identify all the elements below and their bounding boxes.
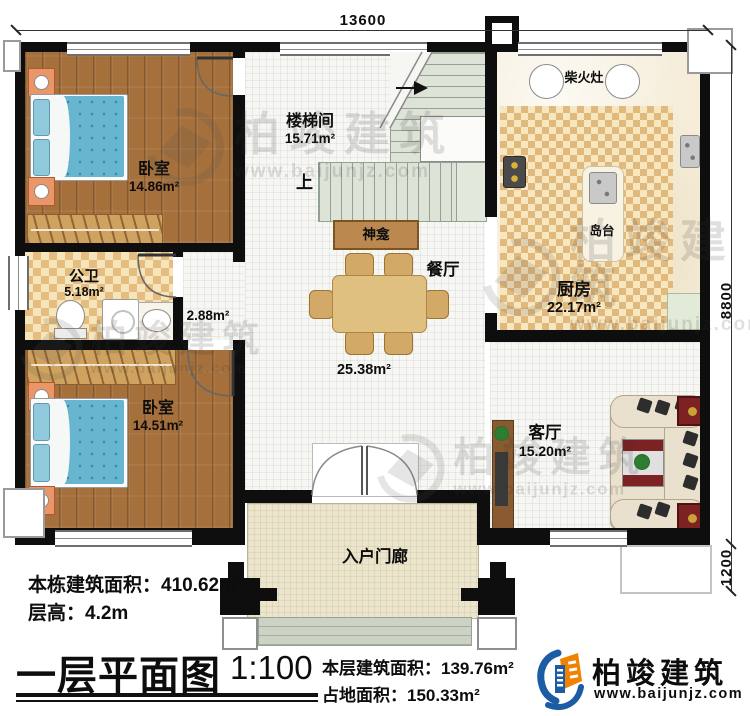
room-area: 14.51m² (112, 418, 204, 434)
exterior-box (3, 488, 45, 538)
room-label-stairwell: 楼梯间 15.71m² (262, 113, 358, 147)
plant-icon (634, 454, 650, 470)
toilet-tank (54, 328, 87, 339)
wardrobe (27, 214, 163, 246)
stair-up-label: 上 (296, 173, 313, 193)
room-name: 卧室 (112, 400, 204, 418)
dimension-right-height: 8800 (718, 282, 735, 319)
window (518, 42, 662, 56)
wood-stove-label: 柴火灶 (556, 71, 612, 86)
wall (233, 95, 245, 262)
fridge-icon (667, 293, 702, 330)
washing-machine-icon (102, 299, 139, 340)
exterior-box (687, 28, 733, 74)
window (55, 530, 192, 547)
pillow (33, 139, 50, 176)
window (8, 256, 29, 310)
dimension-porch-depth: 1200 (718, 549, 735, 586)
room-label-bedroom-top: 卧室 14.86m² (108, 161, 200, 195)
dining-area-label: 25.38m² (326, 362, 402, 379)
wall (477, 490, 490, 545)
wall (233, 340, 245, 350)
dining-chair (309, 290, 334, 319)
wardrobe (27, 346, 176, 385)
room-name: 卧室 (108, 161, 200, 179)
stair-void (420, 116, 486, 162)
footprint-area: 占地面积：150.33m² (322, 681, 480, 706)
hallway-area-label: 2.88m² (176, 308, 240, 324)
room-area: 5.18m² (52, 285, 116, 299)
stair-landing (455, 162, 487, 222)
dining-chair (384, 330, 413, 355)
room-area: 14.86m² (108, 179, 200, 195)
dimension-line-top (16, 30, 708, 31)
total-building-area: 本栋建筑面积：410.62m² (28, 570, 242, 597)
floor-area: 本层建筑面积：139.76m² (322, 654, 514, 679)
column-symbol (478, 578, 515, 615)
exterior-box (3, 40, 21, 72)
wall (233, 52, 245, 58)
room-area: 15.20m² (498, 443, 592, 459)
room-name: 客厅 (498, 424, 592, 443)
window (550, 530, 627, 547)
shrine-cabinet: 神龛 (333, 220, 419, 250)
room-name: 公卫 (52, 268, 116, 285)
pillow (33, 444, 50, 482)
room-area: 15.71m² (262, 131, 358, 147)
entry-steps (258, 617, 472, 646)
nightstand (28, 177, 55, 206)
pillow (33, 99, 50, 136)
plan-scale: 1:100 (230, 649, 313, 687)
room-label-bedroom-bottom: 卧室 14.51m² (112, 400, 204, 434)
floor-height: 层高：4.2m (28, 598, 128, 625)
kitchen-sink-icon (680, 135, 700, 168)
room-label-living: 客厅 15.20m² (498, 424, 592, 459)
wall (417, 490, 479, 503)
pillow (33, 403, 50, 441)
room-name: 厨房 (528, 280, 620, 300)
room-label-dining: 餐厅 (410, 261, 476, 280)
column-symbol (490, 562, 506, 578)
tv-icon (495, 452, 508, 506)
wall (485, 330, 710, 342)
wall (700, 42, 710, 545)
stair-flight-lower (318, 162, 457, 222)
column-symbol (260, 588, 277, 601)
wall (173, 252, 183, 257)
room-label-porch: 入户门廊 (316, 548, 434, 567)
dimension-top-width: 13600 (327, 12, 399, 29)
room-area: 22.17m² (528, 300, 620, 317)
entry-door-panel (312, 443, 419, 497)
island-sink-icon (589, 172, 617, 204)
wall (485, 52, 497, 217)
dining-table (332, 275, 427, 333)
company-website: www.baijunjz.com (594, 686, 743, 702)
room-label-kitchen: 厨房 22.17m² (528, 280, 620, 316)
shrine-label: 神龛 (363, 227, 390, 243)
wall (233, 350, 245, 528)
island-label: 岛台 (584, 224, 620, 238)
wall (25, 340, 188, 350)
chimney-flue (492, 23, 512, 44)
column-base (222, 617, 258, 650)
dining-chair (345, 330, 374, 355)
floor-plan: 神龛 (0, 0, 750, 716)
company-logo-icon (534, 645, 586, 711)
terrace-outline (620, 545, 712, 594)
gas-hob-icon (503, 156, 526, 188)
title-underline (16, 693, 318, 697)
room-name: 楼梯间 (262, 113, 358, 131)
window (67, 42, 190, 56)
hallway-floor (183, 252, 245, 340)
wall (240, 490, 312, 503)
dining-chair (424, 290, 449, 319)
column-symbol (461, 588, 478, 601)
bath-sink-icon (142, 309, 171, 332)
title-underline-thin (16, 700, 318, 702)
room-label-bathroom: 公卫 5.18m² (52, 268, 116, 300)
nightstand (28, 68, 55, 97)
window (280, 42, 427, 56)
wall (25, 243, 233, 252)
column-base (477, 617, 517, 650)
